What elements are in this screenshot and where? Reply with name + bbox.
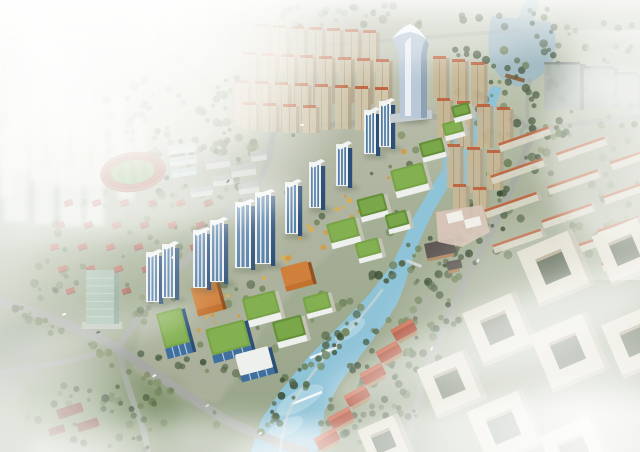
tower-roof-band bbox=[437, 98, 450, 101]
tower-side bbox=[480, 149, 484, 193]
tree bbox=[528, 117, 536, 125]
tree bbox=[532, 103, 537, 108]
tree bbox=[259, 286, 265, 292]
tower-side bbox=[348, 148, 352, 188]
tree bbox=[345, 321, 349, 325]
tree bbox=[222, 364, 228, 370]
glass-stripe bbox=[384, 104, 386, 146]
tree bbox=[144, 372, 150, 378]
tower-side bbox=[500, 152, 504, 190]
tree bbox=[155, 388, 163, 396]
orange-tree bbox=[309, 227, 314, 232]
tree bbox=[504, 65, 510, 71]
scene-canvas bbox=[0, 0, 640, 452]
orange-tree bbox=[321, 245, 326, 250]
orange-tree bbox=[334, 207, 339, 212]
tree bbox=[272, 401, 277, 406]
tower-window-line bbox=[443, 101, 444, 144]
glass-stripe bbox=[341, 147, 343, 185]
tree bbox=[354, 322, 358, 326]
tower-side bbox=[465, 61, 469, 103]
tree bbox=[347, 363, 353, 369]
tree bbox=[327, 336, 331, 340]
tree bbox=[212, 410, 216, 414]
tower-roof-band bbox=[497, 107, 510, 110]
tree bbox=[369, 276, 374, 281]
tower-side bbox=[484, 64, 488, 106]
tree bbox=[529, 97, 534, 102]
tree bbox=[524, 156, 528, 160]
tree bbox=[497, 198, 501, 202]
tree bbox=[513, 119, 522, 128]
tree bbox=[167, 387, 174, 394]
tree bbox=[314, 220, 320, 226]
tree bbox=[303, 381, 310, 388]
tree bbox=[337, 344, 342, 349]
tower-window-line bbox=[493, 153, 494, 190]
tower-window-line bbox=[458, 62, 459, 103]
tree bbox=[489, 80, 494, 85]
tree bbox=[428, 236, 433, 241]
orange-tree bbox=[285, 256, 290, 261]
haze-band-left bbox=[0, 0, 130, 452]
residential-tower bbox=[452, 59, 469, 103]
tree bbox=[341, 328, 349, 336]
tree bbox=[497, 191, 503, 197]
tower-roof-band bbox=[487, 150, 500, 153]
tree bbox=[374, 271, 383, 280]
tower-window-line bbox=[473, 150, 474, 193]
tree bbox=[353, 310, 361, 318]
tree bbox=[497, 80, 501, 84]
residential-tower bbox=[447, 144, 464, 188]
tree bbox=[154, 379, 162, 387]
orange-tree bbox=[387, 176, 390, 179]
tree bbox=[490, 94, 494, 98]
tree bbox=[332, 350, 337, 355]
residential-tower bbox=[487, 150, 504, 190]
tree bbox=[137, 350, 144, 357]
glass-stripe bbox=[366, 113, 368, 153]
orange-tree bbox=[344, 195, 347, 198]
tree bbox=[319, 213, 326, 220]
glass-stripe bbox=[344, 147, 346, 185]
tower-roof-band bbox=[473, 187, 486, 190]
tower-roof-band bbox=[467, 147, 480, 150]
tree bbox=[321, 349, 325, 353]
tree bbox=[308, 362, 314, 368]
tree bbox=[415, 245, 422, 252]
tree bbox=[298, 368, 302, 372]
glass-stripe bbox=[387, 104, 389, 146]
orange-tree bbox=[237, 315, 240, 318]
tree bbox=[197, 341, 203, 347]
tree bbox=[310, 319, 314, 323]
haze-band-right bbox=[552, 30, 640, 280]
tower-window-line bbox=[361, 89, 362, 130]
tower-window-line bbox=[477, 65, 478, 106]
glass-stripe bbox=[372, 113, 374, 153]
tree bbox=[503, 186, 510, 193]
aerial-masterplan-rendering bbox=[0, 0, 640, 452]
tree bbox=[522, 84, 530, 92]
tree bbox=[280, 378, 285, 383]
orange-tree bbox=[342, 206, 345, 209]
tower-roof-band bbox=[453, 184, 466, 187]
tower-window-line bbox=[483, 107, 484, 148]
tree bbox=[180, 364, 186, 370]
tree bbox=[148, 380, 154, 386]
residential-tower bbox=[477, 104, 494, 148]
tree bbox=[255, 326, 259, 330]
tree bbox=[184, 356, 190, 362]
tower-side bbox=[460, 146, 464, 188]
glass-stripe bbox=[369, 113, 371, 153]
orange-tree bbox=[307, 224, 310, 227]
tower-roof-band bbox=[375, 87, 388, 90]
tower-roof-band bbox=[477, 104, 490, 107]
tree bbox=[388, 271, 396, 279]
orange-tree bbox=[197, 328, 201, 332]
tree bbox=[141, 376, 146, 381]
tree bbox=[502, 90, 508, 96]
glass-stripe bbox=[381, 104, 383, 146]
tree bbox=[315, 355, 322, 362]
tree bbox=[273, 413, 279, 419]
tree bbox=[514, 74, 518, 78]
tree bbox=[412, 146, 419, 153]
tree bbox=[292, 396, 296, 400]
orange-tree bbox=[347, 198, 352, 203]
residential-tower bbox=[471, 62, 488, 106]
tree bbox=[289, 378, 296, 385]
tree bbox=[200, 359, 207, 366]
tree bbox=[406, 243, 411, 248]
tree bbox=[389, 261, 397, 269]
tree bbox=[357, 304, 365, 312]
tree bbox=[317, 363, 325, 371]
tree bbox=[491, 64, 496, 69]
orange-tree bbox=[324, 230, 329, 235]
tree bbox=[205, 369, 209, 373]
tower-window-line bbox=[453, 147, 454, 188]
tree bbox=[398, 131, 406, 139]
tree bbox=[400, 260, 406, 266]
tower-side bbox=[391, 105, 395, 149]
tree bbox=[155, 356, 160, 361]
orange-tree bbox=[285, 261, 288, 264]
tower-side bbox=[490, 106, 494, 148]
tree bbox=[332, 343, 336, 347]
orange-tree bbox=[401, 149, 406, 154]
tree bbox=[384, 278, 390, 284]
tree bbox=[412, 254, 416, 258]
tree bbox=[505, 78, 512, 85]
tree bbox=[370, 172, 374, 176]
tree bbox=[270, 410, 274, 414]
tower-roof-band bbox=[447, 144, 460, 147]
tree bbox=[504, 159, 512, 167]
tree bbox=[301, 363, 308, 370]
tree bbox=[346, 298, 353, 305]
tree bbox=[388, 165, 392, 169]
orange-tree bbox=[213, 321, 215, 323]
tree bbox=[322, 341, 330, 349]
tree bbox=[278, 392, 286, 400]
